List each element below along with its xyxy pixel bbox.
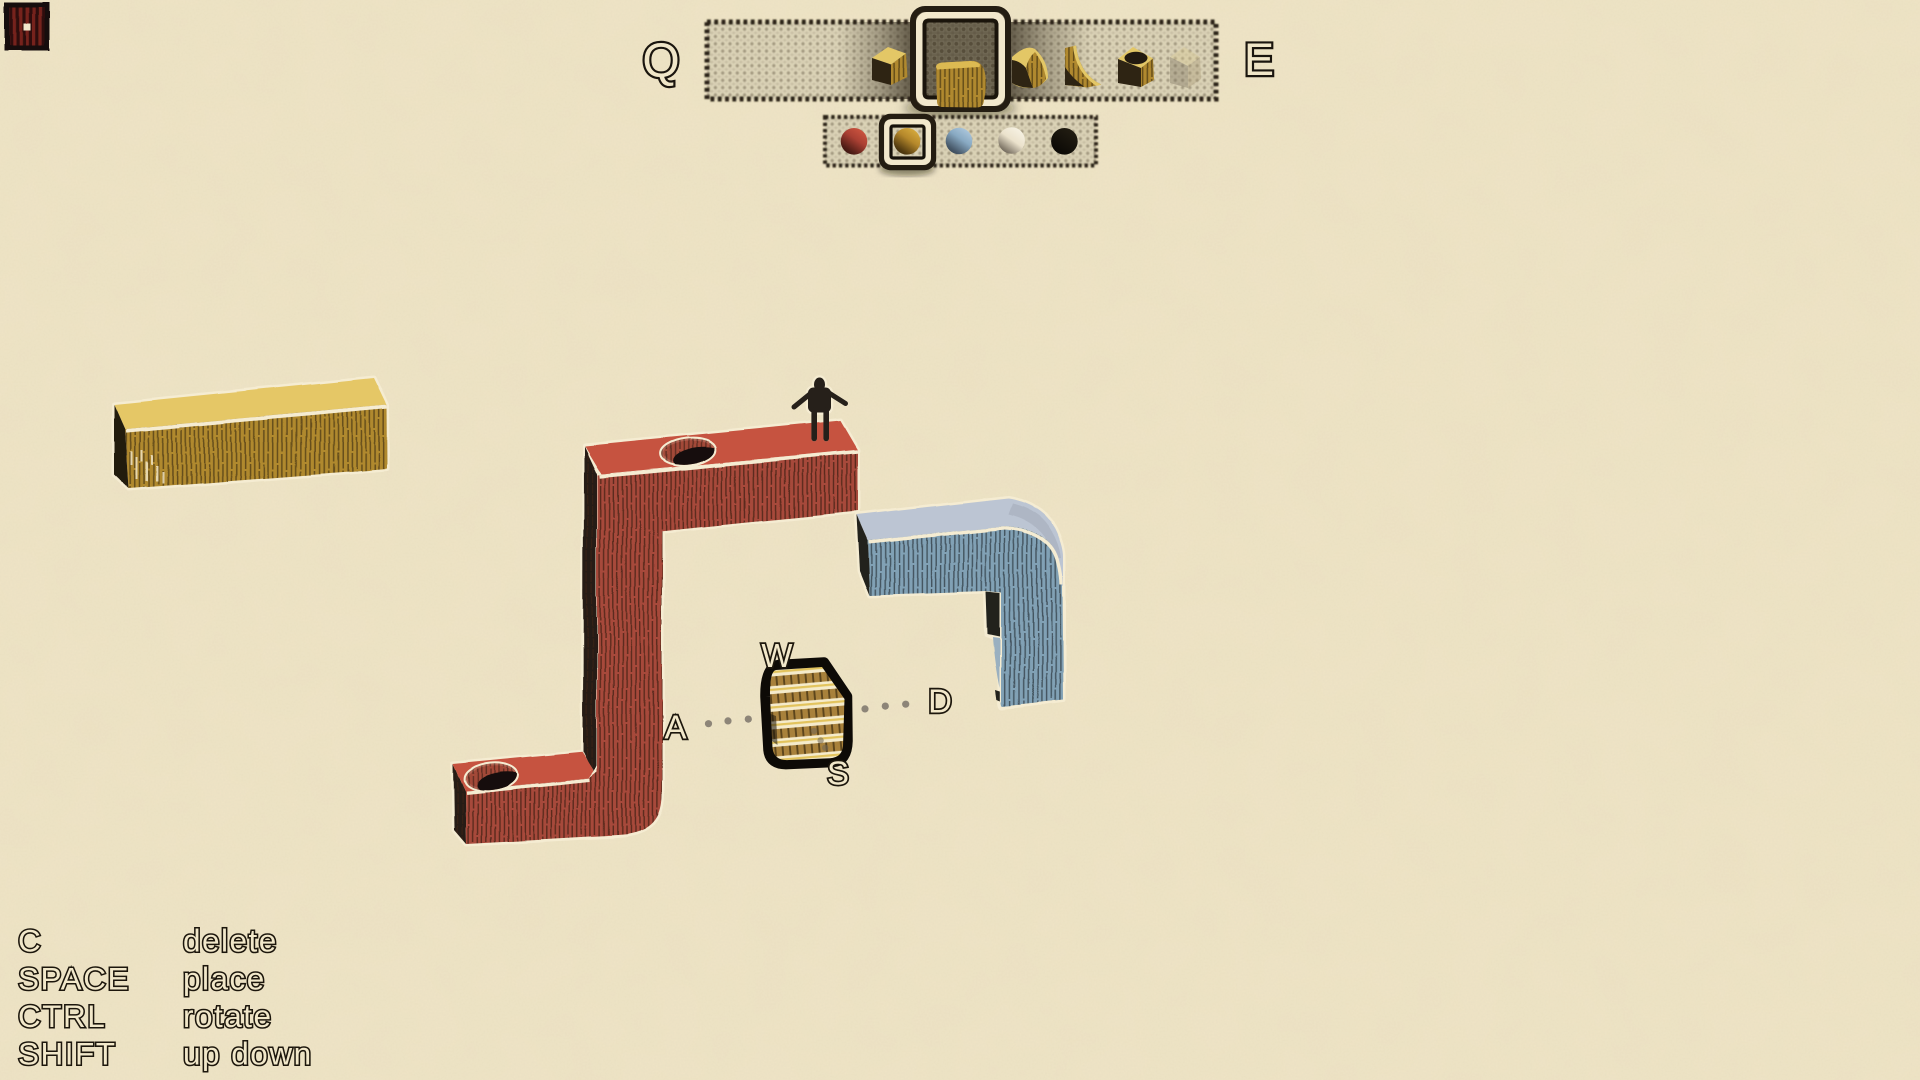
svg-text:rotate: rotate [183, 998, 273, 1034]
svg-text:up down: up down [183, 1036, 313, 1072]
svg-text:SPACE: SPACE [18, 960, 130, 996]
svg-text:Q: Q [642, 35, 679, 88]
svg-text:D: D [928, 683, 952, 720]
svg-text:place: place [183, 960, 266, 996]
svg-text:S: S [827, 755, 849, 792]
svg-text:A: A [664, 709, 686, 746]
svg-text:CTRL: CTRL [18, 998, 106, 1034]
svg-text:E: E [1244, 34, 1274, 85]
svg-text:SHIFT: SHIFT [18, 1036, 117, 1072]
svg-text:delete: delete [183, 923, 278, 959]
svg-text:W: W [761, 637, 793, 674]
svg-text:C: C [18, 923, 42, 959]
